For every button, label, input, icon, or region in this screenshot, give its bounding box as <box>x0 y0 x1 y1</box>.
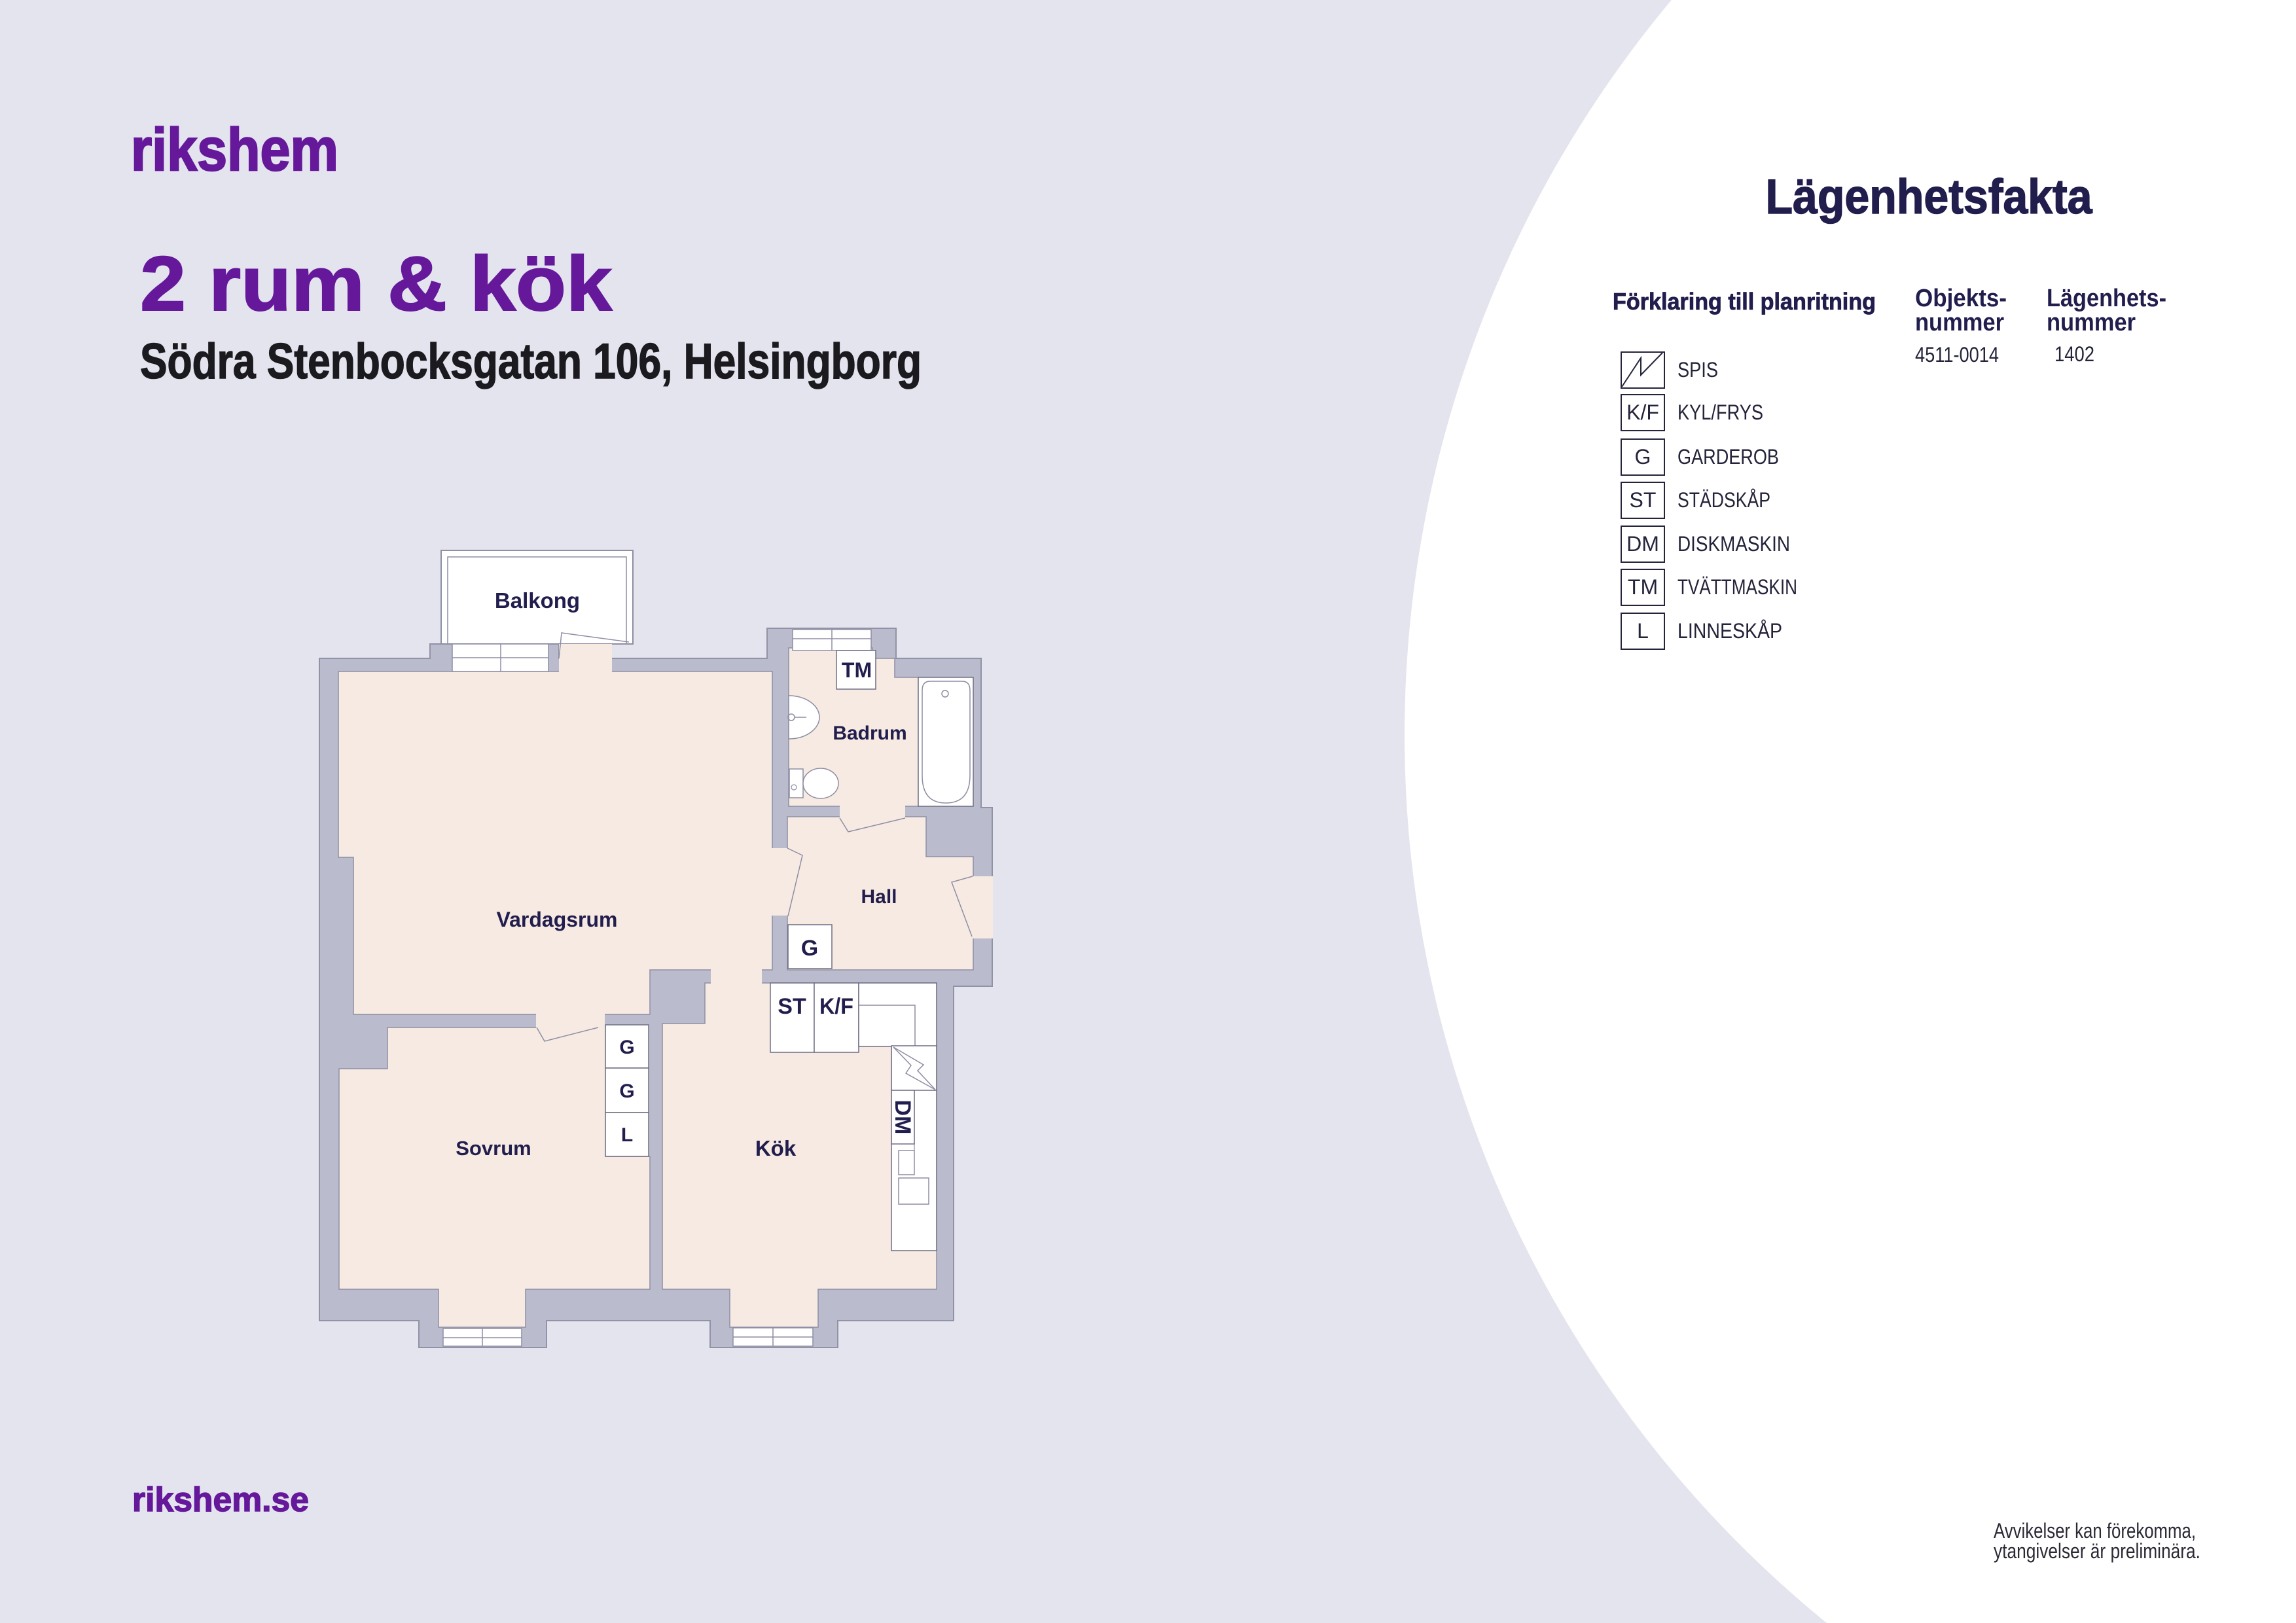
svg-text:Vardagsrum: Vardagsrum <box>497 908 618 931</box>
svg-text:GARDEROB: GARDEROB <box>1677 445 1779 469</box>
svg-text:Balkong: Balkong <box>495 588 580 613</box>
svg-text:nummer: nummer <box>2047 309 2136 336</box>
svg-text:Sovrum: Sovrum <box>456 1137 531 1160</box>
svg-text:rikshem.se: rikshem.se <box>132 1481 309 1519</box>
svg-text:Södra Stenbocksgatan 106, Hels: Södra Stenbocksgatan 106, Helsingborg <box>140 334 922 389</box>
svg-text:TM: TM <box>1628 575 1658 599</box>
svg-text:G: G <box>801 936 818 961</box>
svg-text:TM: TM <box>842 658 872 682</box>
svg-text:L: L <box>1637 619 1649 643</box>
svg-text:G: G <box>619 1080 634 1102</box>
svg-text:2 rum & kök: 2 rum & kök <box>140 241 612 327</box>
svg-text:KYL/FRYS: KYL/FRYS <box>1677 401 1763 424</box>
svg-text:Lägenhetsfakta: Lägenhetsfakta <box>1766 169 2093 224</box>
svg-text:Kök: Kök <box>755 1136 797 1160</box>
svg-text:DISKMASKIN: DISKMASKIN <box>1677 532 1790 556</box>
svg-text:TVÄTTMASKIN: TVÄTTMASKIN <box>1677 575 1797 599</box>
svg-text:L: L <box>621 1124 633 1146</box>
svg-text:Förklaring till planritning: Förklaring till planritning <box>1613 288 1876 315</box>
svg-text:G: G <box>619 1037 634 1058</box>
svg-text:rikshem: rikshem <box>131 116 338 183</box>
svg-text:LINNESKÅP: LINNESKÅP <box>1677 619 1782 643</box>
svg-text:4511-0014: 4511-0014 <box>1915 343 1999 366</box>
svg-text:1402: 1402 <box>2054 342 2094 366</box>
svg-text:ST: ST <box>1630 488 1657 512</box>
svg-text:DM: DM <box>1626 532 1659 556</box>
svg-text:K/F: K/F <box>819 994 853 1019</box>
svg-text:nummer: nummer <box>1915 309 2004 336</box>
svg-text:Hall: Hall <box>861 886 897 908</box>
svg-text:ytangivelser är preliminära.: ytangivelser är preliminära. <box>1994 1539 2200 1563</box>
svg-text:ST: ST <box>778 994 806 1019</box>
svg-text:STÄDSKÅP: STÄDSKÅP <box>1677 488 1770 512</box>
svg-text:K/F: K/F <box>1626 401 1659 424</box>
svg-text:Objekts-: Objekts- <box>1915 285 2007 312</box>
svg-text:Badrum: Badrum <box>833 722 906 744</box>
svg-text:DM: DM <box>890 1100 915 1135</box>
svg-text:Lägenhets-: Lägenhets- <box>2047 285 2166 312</box>
svg-text:G: G <box>1635 445 1651 469</box>
svg-text:SPIS: SPIS <box>1677 358 1718 382</box>
